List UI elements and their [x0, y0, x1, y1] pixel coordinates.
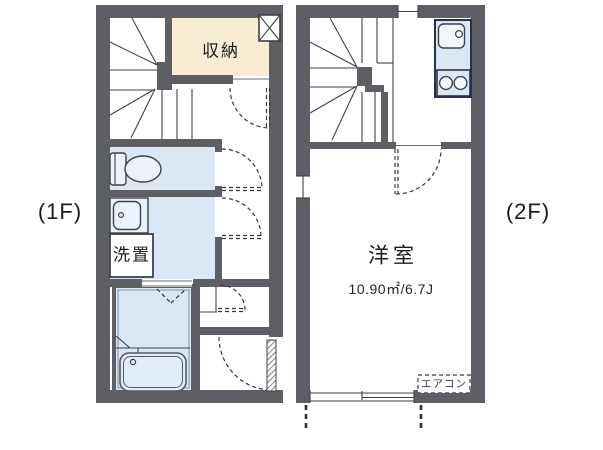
room-area-label: 10.90㎡/6.7J [349, 282, 434, 296]
floor-plan-1f [96, 5, 283, 403]
window-icon-balcony [310, 390, 414, 403]
window-icon-top [398, 5, 418, 18]
stair-newel-post [357, 67, 372, 86]
kitchen-counter [435, 20, 471, 97]
room-name-label: 洋室 [368, 246, 418, 267]
eave-dashed-lines [306, 405, 421, 428]
aircon-label: エアコン [421, 379, 467, 390]
kitchen-sink-icon [439, 24, 465, 48]
floor-plan-2f [296, 5, 485, 430]
floor2-label: (2F) [506, 201, 550, 223]
floor1-label: (1F) [38, 201, 82, 223]
bathroom [112, 279, 195, 394]
bathtub-icon [120, 353, 186, 391]
laundry-label: 洗置 [113, 247, 151, 264]
vent-fan-icon [259, 15, 280, 41]
storage-label: 収納 [202, 43, 240, 60]
front-door-leaf [267, 340, 276, 391]
window-icon-left [296, 176, 310, 198]
toilet-icon [110, 153, 161, 185]
floorplan-page: (1F) (2F) 収納 洗置 洋室 10.90㎡/6.7J エアコン [0, 0, 603, 450]
washbasin-icon [110, 198, 148, 233]
